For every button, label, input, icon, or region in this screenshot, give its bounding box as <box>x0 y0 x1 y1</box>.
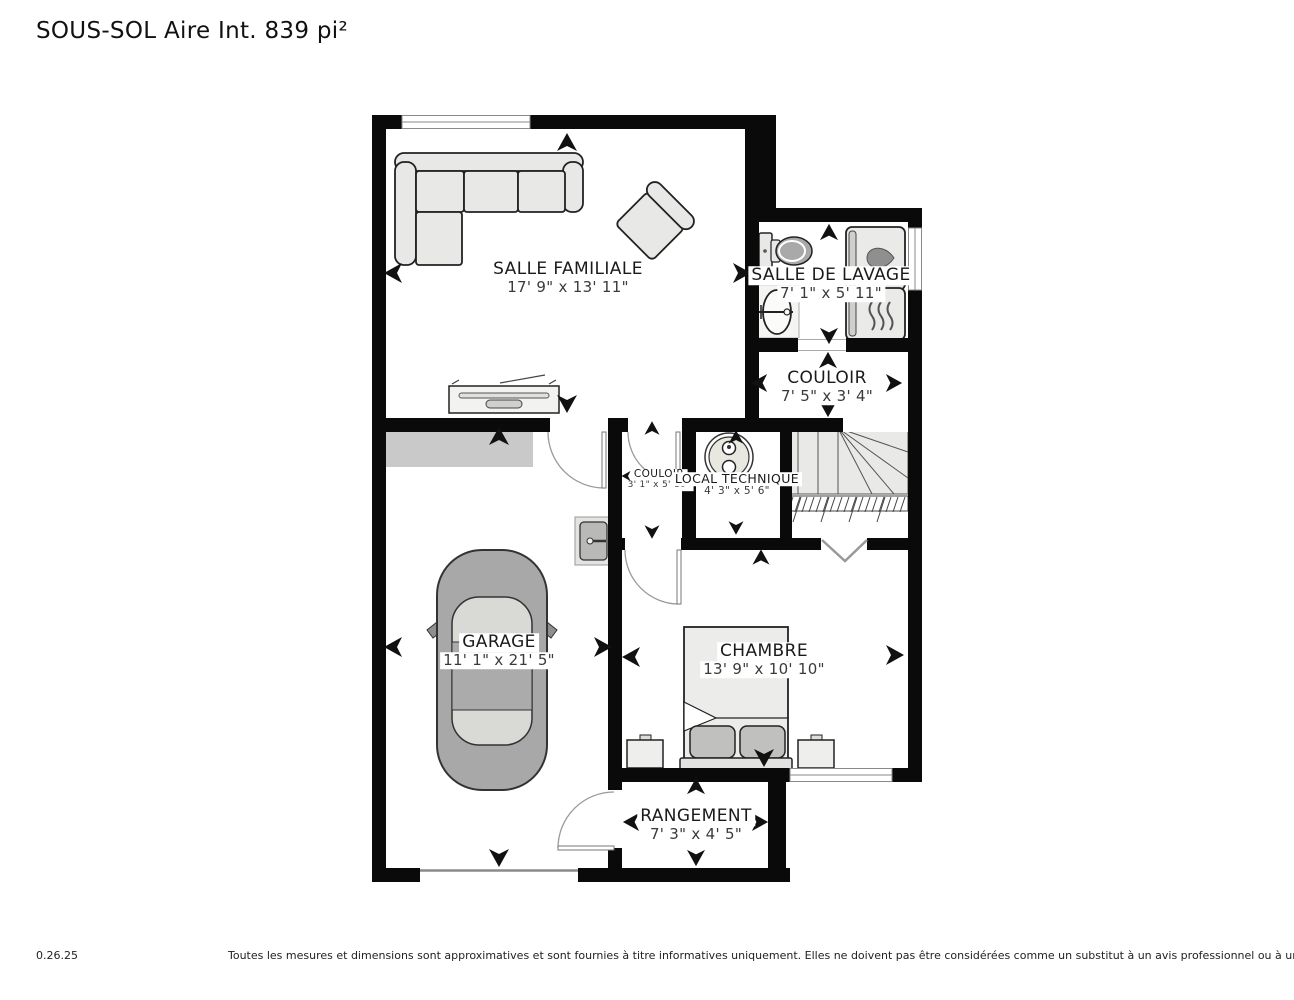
room-name: CHAMBRE <box>717 642 811 661</box>
room-label-local-technique: LOCAL TECHNIQUE 4' 3" x 5' 6" <box>672 472 802 498</box>
room-name: GARAGE <box>459 633 539 652</box>
nightstand-left <box>627 735 663 768</box>
floor-plan <box>0 0 1294 1000</box>
floor-plan-page: SOUS-SOL Aire Int. 839 pi² <box>0 0 1294 1000</box>
room-dims: 13' 9" x 10' 10" <box>700 661 828 678</box>
window-chambre <box>790 769 892 782</box>
garage-door <box>420 868 578 882</box>
room-name: RANGEMENT <box>637 807 755 826</box>
room-dims: 7' 5" x 3' 4" <box>778 388 876 405</box>
room-label-salle-familiale: SALLE FAMILIALE 17' 9" x 13' 11" <box>490 260 646 296</box>
room-label-rangement: RANGEMENT 7' 3" x 4' 5" <box>637 807 755 843</box>
room-label-salle-de-lavage: SALLE DE LAVAGE 7' 1" x 5' 11" <box>748 266 913 302</box>
laundry-door-opening <box>798 338 846 352</box>
room-name: COULOIR <box>784 369 870 388</box>
room-dims: 11' 1" x 21' 5" <box>440 652 558 669</box>
room-dims: 7' 1" x 5' 11" <box>777 285 885 302</box>
car <box>427 550 557 790</box>
disclaimer-text: Toutes les mesures et dimensions sont ap… <box>228 949 1137 962</box>
garage-shelf <box>386 430 533 467</box>
room-dims: 7' 3" x 4' 5" <box>647 826 745 843</box>
room-name: SALLE DE LAVAGE <box>748 266 913 285</box>
room-dims: 4' 3" x 5' 6" <box>701 486 773 498</box>
room-label-couloir: COULOIR 7' 5" x 3' 4" <box>778 369 876 405</box>
utility-sink <box>575 517 612 565</box>
room-dims: 17' 9" x 13' 11" <box>504 279 632 296</box>
room-name: LOCAL TECHNIQUE <box>672 472 802 486</box>
window-top <box>402 116 530 129</box>
room-label-garage: GARAGE 11' 1" x 21' 5" <box>440 633 558 669</box>
version-label: 0.26.25 <box>36 949 78 962</box>
room-name: SALLE FAMILIALE <box>490 260 646 279</box>
staircase <box>788 428 908 494</box>
nightstand-right <box>798 735 834 768</box>
room-label-chambre: CHAMBRE 13' 9" x 10' 10" <box>700 642 828 678</box>
stairs-entry-opening <box>843 418 908 432</box>
